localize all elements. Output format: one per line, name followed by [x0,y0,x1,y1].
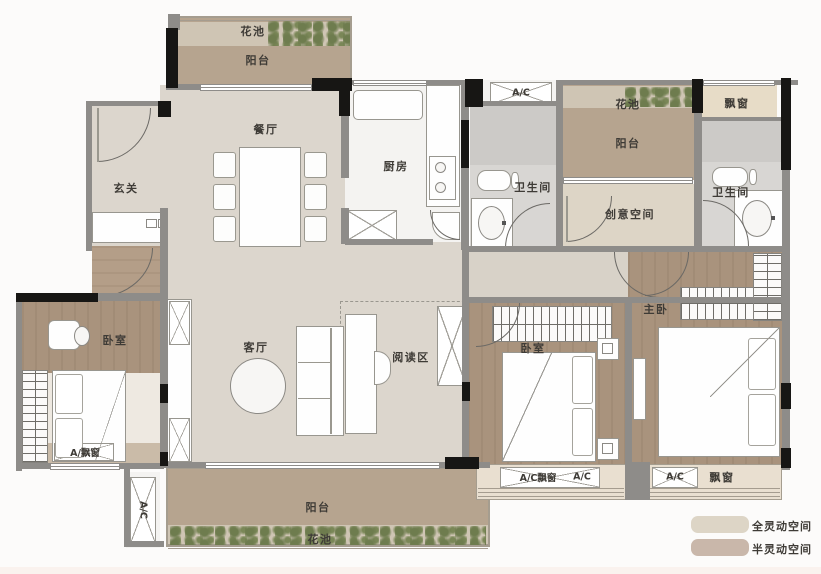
bath-left-shower [470,105,558,165]
faucet [502,221,506,225]
column [781,383,791,409]
column [781,448,791,468]
label-ac-bay-mid2: A/C [573,472,591,483]
wall [700,117,783,121]
label-master: 主卧 [644,301,669,317]
column [160,384,168,403]
wardrobe [22,370,48,463]
label-foyer: 玄关 [114,180,139,196]
pillow [748,394,776,446]
floor-plan: 花池 阳台 餐厅 玄关 厨房 A/C 卫生间 花池 阳台 飘窗 卫生间 创意空间… [0,0,821,574]
sofa-seam [298,398,330,399]
column [692,79,703,113]
chair [304,184,327,210]
bath-right-shower [700,120,784,162]
label-bedroom-left: 卧室 [103,332,128,348]
label-ac-bay-left: A/飘窗 [70,445,100,459]
label-ac-top: A/C [512,88,530,99]
label-balcony-bottom: 阳台 [306,499,331,515]
column [781,78,791,170]
label-flower-right: 花池 [616,96,641,112]
column [339,80,350,116]
legend-label-semi-flex: 半灵动空间 [752,541,812,557]
legend-swatch-semi-flex [691,539,749,556]
blanket-fold [502,352,552,462]
coffee-table [230,358,286,414]
wardrobe [680,287,754,320]
chair [304,216,327,242]
wall [124,541,164,547]
label-reading: 阅读区 [392,349,430,365]
sofa [296,326,344,436]
toilet-tank [749,169,757,185]
label-ac-left: A/C [138,501,149,519]
wall [124,469,130,547]
column [16,293,98,302]
pillow [572,356,593,404]
column [462,382,470,401]
label-balcony-top: 阳台 [246,52,271,68]
label-bath-right: 卫生间 [712,184,750,200]
blanket-fold [710,327,780,397]
window [703,80,775,86]
label-bay-top-right: 飘窗 [725,95,750,111]
burner [435,162,446,173]
nightstand-detail [602,343,613,354]
bottom-edge-tint [0,567,821,574]
wall [16,293,22,471]
wall [468,246,790,252]
column [160,452,168,466]
dining-table [239,147,301,247]
wall [86,101,166,106]
storage-unit [169,301,190,345]
sofa-back-line [330,328,332,434]
label-creative: 创意空间 [605,206,655,222]
chair [213,216,236,242]
chair [213,152,236,178]
wardrobe [753,253,782,321]
wall [462,250,469,465]
wall [160,297,168,467]
label-dining: 餐厅 [254,121,279,137]
window [353,80,427,86]
chair [304,152,327,178]
label-kitchen: 厨房 [384,158,409,174]
basin [478,206,505,240]
reading-desk [345,314,377,434]
label-flower-bottom: 花池 [308,531,333,547]
sliding-door [205,462,440,469]
wall [86,101,92,251]
railing [650,488,780,499]
burner [435,182,446,193]
legend-swatch-full-flex [691,516,749,533]
railing [478,488,624,499]
label-bay-master: 飘窗 [710,469,735,485]
wall [160,208,168,300]
faucet [771,216,775,220]
nightstand-detail [602,443,613,454]
column [465,79,483,107]
label-bath-left: 卫生间 [514,179,552,195]
bench [633,358,646,420]
toilet [477,170,511,191]
label-bedroom-mid: 卧室 [521,340,546,356]
label-balcony-right: 阳台 [616,135,641,151]
wall [345,239,433,245]
label-ac-master: A/C [666,472,684,483]
pillow [572,408,593,456]
plants [268,21,350,46]
wall [625,462,650,500]
chair [213,184,236,210]
cabinet-detail [146,219,157,228]
column [158,101,171,117]
storage-unit [169,418,190,462]
door-leaf [566,196,568,242]
legend-label-full-flex: 全灵动空间 [752,518,812,534]
pillow [55,374,83,414]
window [563,177,693,184]
door-leaf [97,108,99,162]
desk-chair [74,326,90,346]
label-flower-top: 花池 [241,23,266,39]
kitchen-cabinet [347,210,397,241]
column [166,28,178,88]
wall [470,101,558,106]
label-living: 客厅 [244,339,269,355]
column [445,457,479,469]
window [50,463,120,470]
bedroom-left-floor [22,301,160,373]
window [200,84,312,91]
column [461,120,469,168]
label-ac-bay-mid: A/C飘窗 [520,470,557,484]
hallway-floor [468,250,628,303]
kitchen-sink [353,90,423,120]
sofa-seam [298,362,330,363]
wall [625,302,632,464]
